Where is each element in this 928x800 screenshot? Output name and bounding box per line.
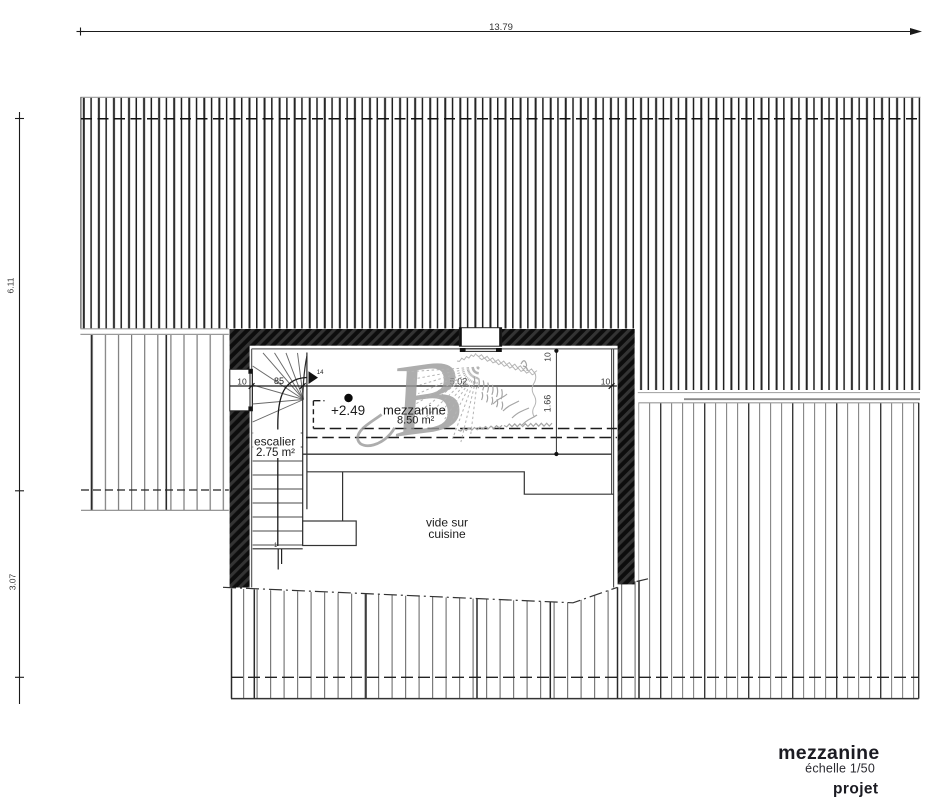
svg-text:cuisine: cuisine bbox=[428, 527, 466, 541]
svg-text:10: 10 bbox=[237, 377, 247, 387]
svg-text:1.66: 1.66 bbox=[543, 395, 553, 413]
svg-text:échelle 1/50: échelle 1/50 bbox=[805, 762, 875, 776]
svg-text:85: 85 bbox=[274, 376, 284, 386]
svg-text:10: 10 bbox=[601, 376, 611, 386]
svg-text:2.75 m²: 2.75 m² bbox=[256, 447, 295, 459]
svg-text:6.11: 6.11 bbox=[6, 277, 16, 293]
svg-text:8.50 m²: 8.50 m² bbox=[397, 415, 435, 427]
svg-text:10: 10 bbox=[542, 352, 552, 362]
svg-text:14: 14 bbox=[317, 370, 324, 376]
svg-text:13.79: 13.79 bbox=[489, 22, 513, 33]
svg-text:+2.49: +2.49 bbox=[331, 403, 365, 418]
svg-text:3.07: 3.07 bbox=[8, 573, 18, 590]
svg-text:projet: projet bbox=[833, 781, 878, 798]
